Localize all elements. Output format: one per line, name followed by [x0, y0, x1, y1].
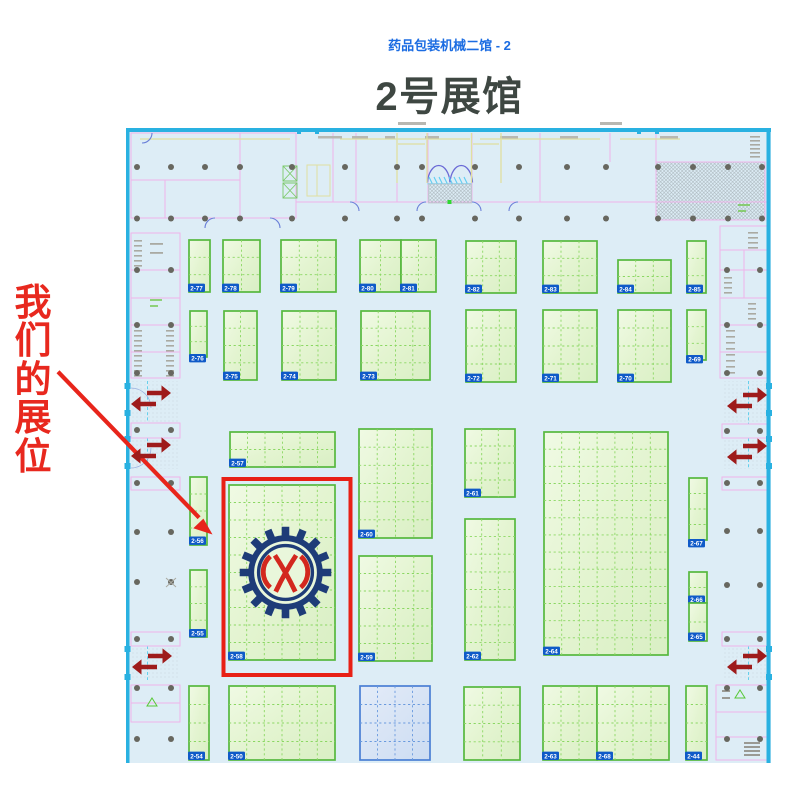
svg-text:2-59: 2-59: [360, 654, 373, 661]
svg-text:2-83: 2-83: [544, 286, 557, 293]
svg-text:2-50: 2-50: [230, 753, 243, 760]
svg-text:2-62: 2-62: [466, 653, 479, 660]
svg-text:2-74: 2-74: [283, 373, 296, 380]
svg-text:2-85: 2-85: [688, 286, 701, 293]
svg-text:2-67: 2-67: [690, 541, 703, 548]
svg-text:2-69: 2-69: [688, 357, 701, 364]
svg-text:2-75: 2-75: [225, 373, 238, 380]
svg-text:2-81: 2-81: [402, 285, 415, 292]
svg-text:2-72: 2-72: [467, 375, 480, 382]
svg-text:2-44: 2-44: [687, 753, 700, 760]
svg-text:2-71: 2-71: [544, 375, 557, 382]
svg-text:2-54: 2-54: [190, 753, 203, 760]
svg-text:2-80: 2-80: [361, 285, 374, 292]
svg-text:2-63: 2-63: [544, 753, 557, 760]
svg-text:2-84: 2-84: [619, 286, 632, 293]
svg-text:2-61: 2-61: [466, 490, 479, 497]
svg-text:2-78: 2-78: [224, 285, 237, 292]
svg-text:2-82: 2-82: [467, 286, 480, 293]
svg-text:2-79: 2-79: [282, 285, 295, 292]
svg-text:2-55: 2-55: [191, 631, 204, 638]
svg-text:2-70: 2-70: [619, 375, 632, 382]
svg-text:2-68: 2-68: [598, 753, 611, 760]
svg-text:2-76: 2-76: [191, 356, 204, 363]
svg-text:2-73: 2-73: [362, 373, 375, 380]
svg-text:2-58: 2-58: [230, 653, 243, 660]
svg-text:2-56: 2-56: [191, 538, 204, 545]
svg-text:2-64: 2-64: [545, 648, 558, 655]
svg-text:2-65: 2-65: [690, 634, 703, 641]
svg-text:2-57: 2-57: [231, 460, 244, 467]
svg-text:2-60: 2-60: [360, 531, 373, 538]
svg-text:2-77: 2-77: [190, 285, 203, 292]
